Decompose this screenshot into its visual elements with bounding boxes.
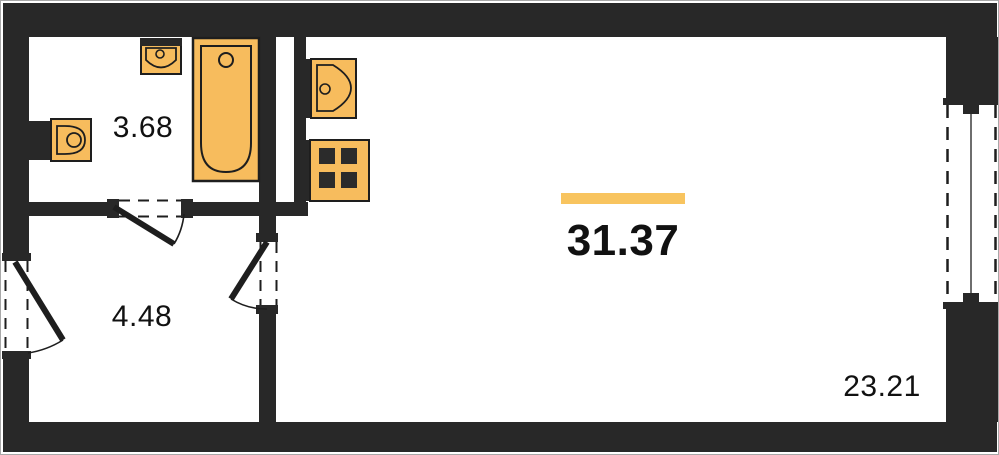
kitchen-sink <box>306 59 356 118</box>
stove-burner-bottom-left <box>319 172 335 188</box>
wall-left-lower <box>3 359 29 422</box>
room-door-jamb-top <box>256 233 278 242</box>
bathroom-door <box>114 201 184 245</box>
stove-body <box>310 140 369 201</box>
stove-burner-top-left <box>319 148 335 164</box>
bathroom-door-leaf <box>114 207 174 244</box>
main-room-area-label: 31.37 <box>567 216 680 266</box>
wall-kitchen-duct <box>294 37 306 215</box>
wall-top <box>3 3 997 37</box>
window-sill-bottom <box>943 302 999 309</box>
wall-interior-lower <box>259 314 276 422</box>
floor-plan: 3.68 4.48 31.37 23.21 <box>0 0 999 455</box>
stove-burner-top-right <box>341 148 357 164</box>
wall-pillar-window-top <box>946 37 998 98</box>
secondary-area-label: 23.21 <box>843 370 921 404</box>
stove-burner-bottom-right <box>341 172 357 188</box>
main-area-accent-bar <box>561 193 685 204</box>
wall-left-upper <box>3 37 29 253</box>
window <box>948 104 996 303</box>
window-mullion-cap-bottom <box>963 293 979 303</box>
bathtub <box>193 38 259 181</box>
toilet <box>29 119 91 161</box>
toilet-tank <box>29 121 51 160</box>
bathtub-drain <box>219 53 233 67</box>
bathroom-sink-mount <box>140 38 182 46</box>
wall-interior-upper <box>259 37 276 233</box>
stove <box>306 140 369 201</box>
bathroom-sink-faucet <box>156 50 164 58</box>
main-room-door <box>231 242 277 309</box>
bathroom-sink <box>140 38 182 74</box>
kitchen-sink-faucet <box>320 84 330 94</box>
entry-door <box>6 261 64 353</box>
entry-door-jamb-bottom <box>2 351 31 359</box>
bathroom-area-label: 3.68 <box>113 111 173 145</box>
window-mullion-cap-top <box>963 104 979 114</box>
wall-bottom <box>3 422 997 452</box>
wall-bath-separator-right <box>193 202 308 216</box>
window-sill-top <box>943 98 999 105</box>
bathroom-door-swing-arc <box>174 214 184 244</box>
entry-door-swing-arc <box>28 340 63 353</box>
entry-door-jamb-top <box>2 253 31 261</box>
main-room-door-leaf <box>231 242 267 299</box>
wall-pillar-window-bottom <box>946 309 998 422</box>
bath-door-jamb-right <box>181 199 193 218</box>
hallway-area-label: 4.48 <box>112 300 172 334</box>
toilet-flush <box>67 133 81 147</box>
entry-door-leaf <box>15 262 63 340</box>
wall-bath-separator-left <box>29 202 109 216</box>
